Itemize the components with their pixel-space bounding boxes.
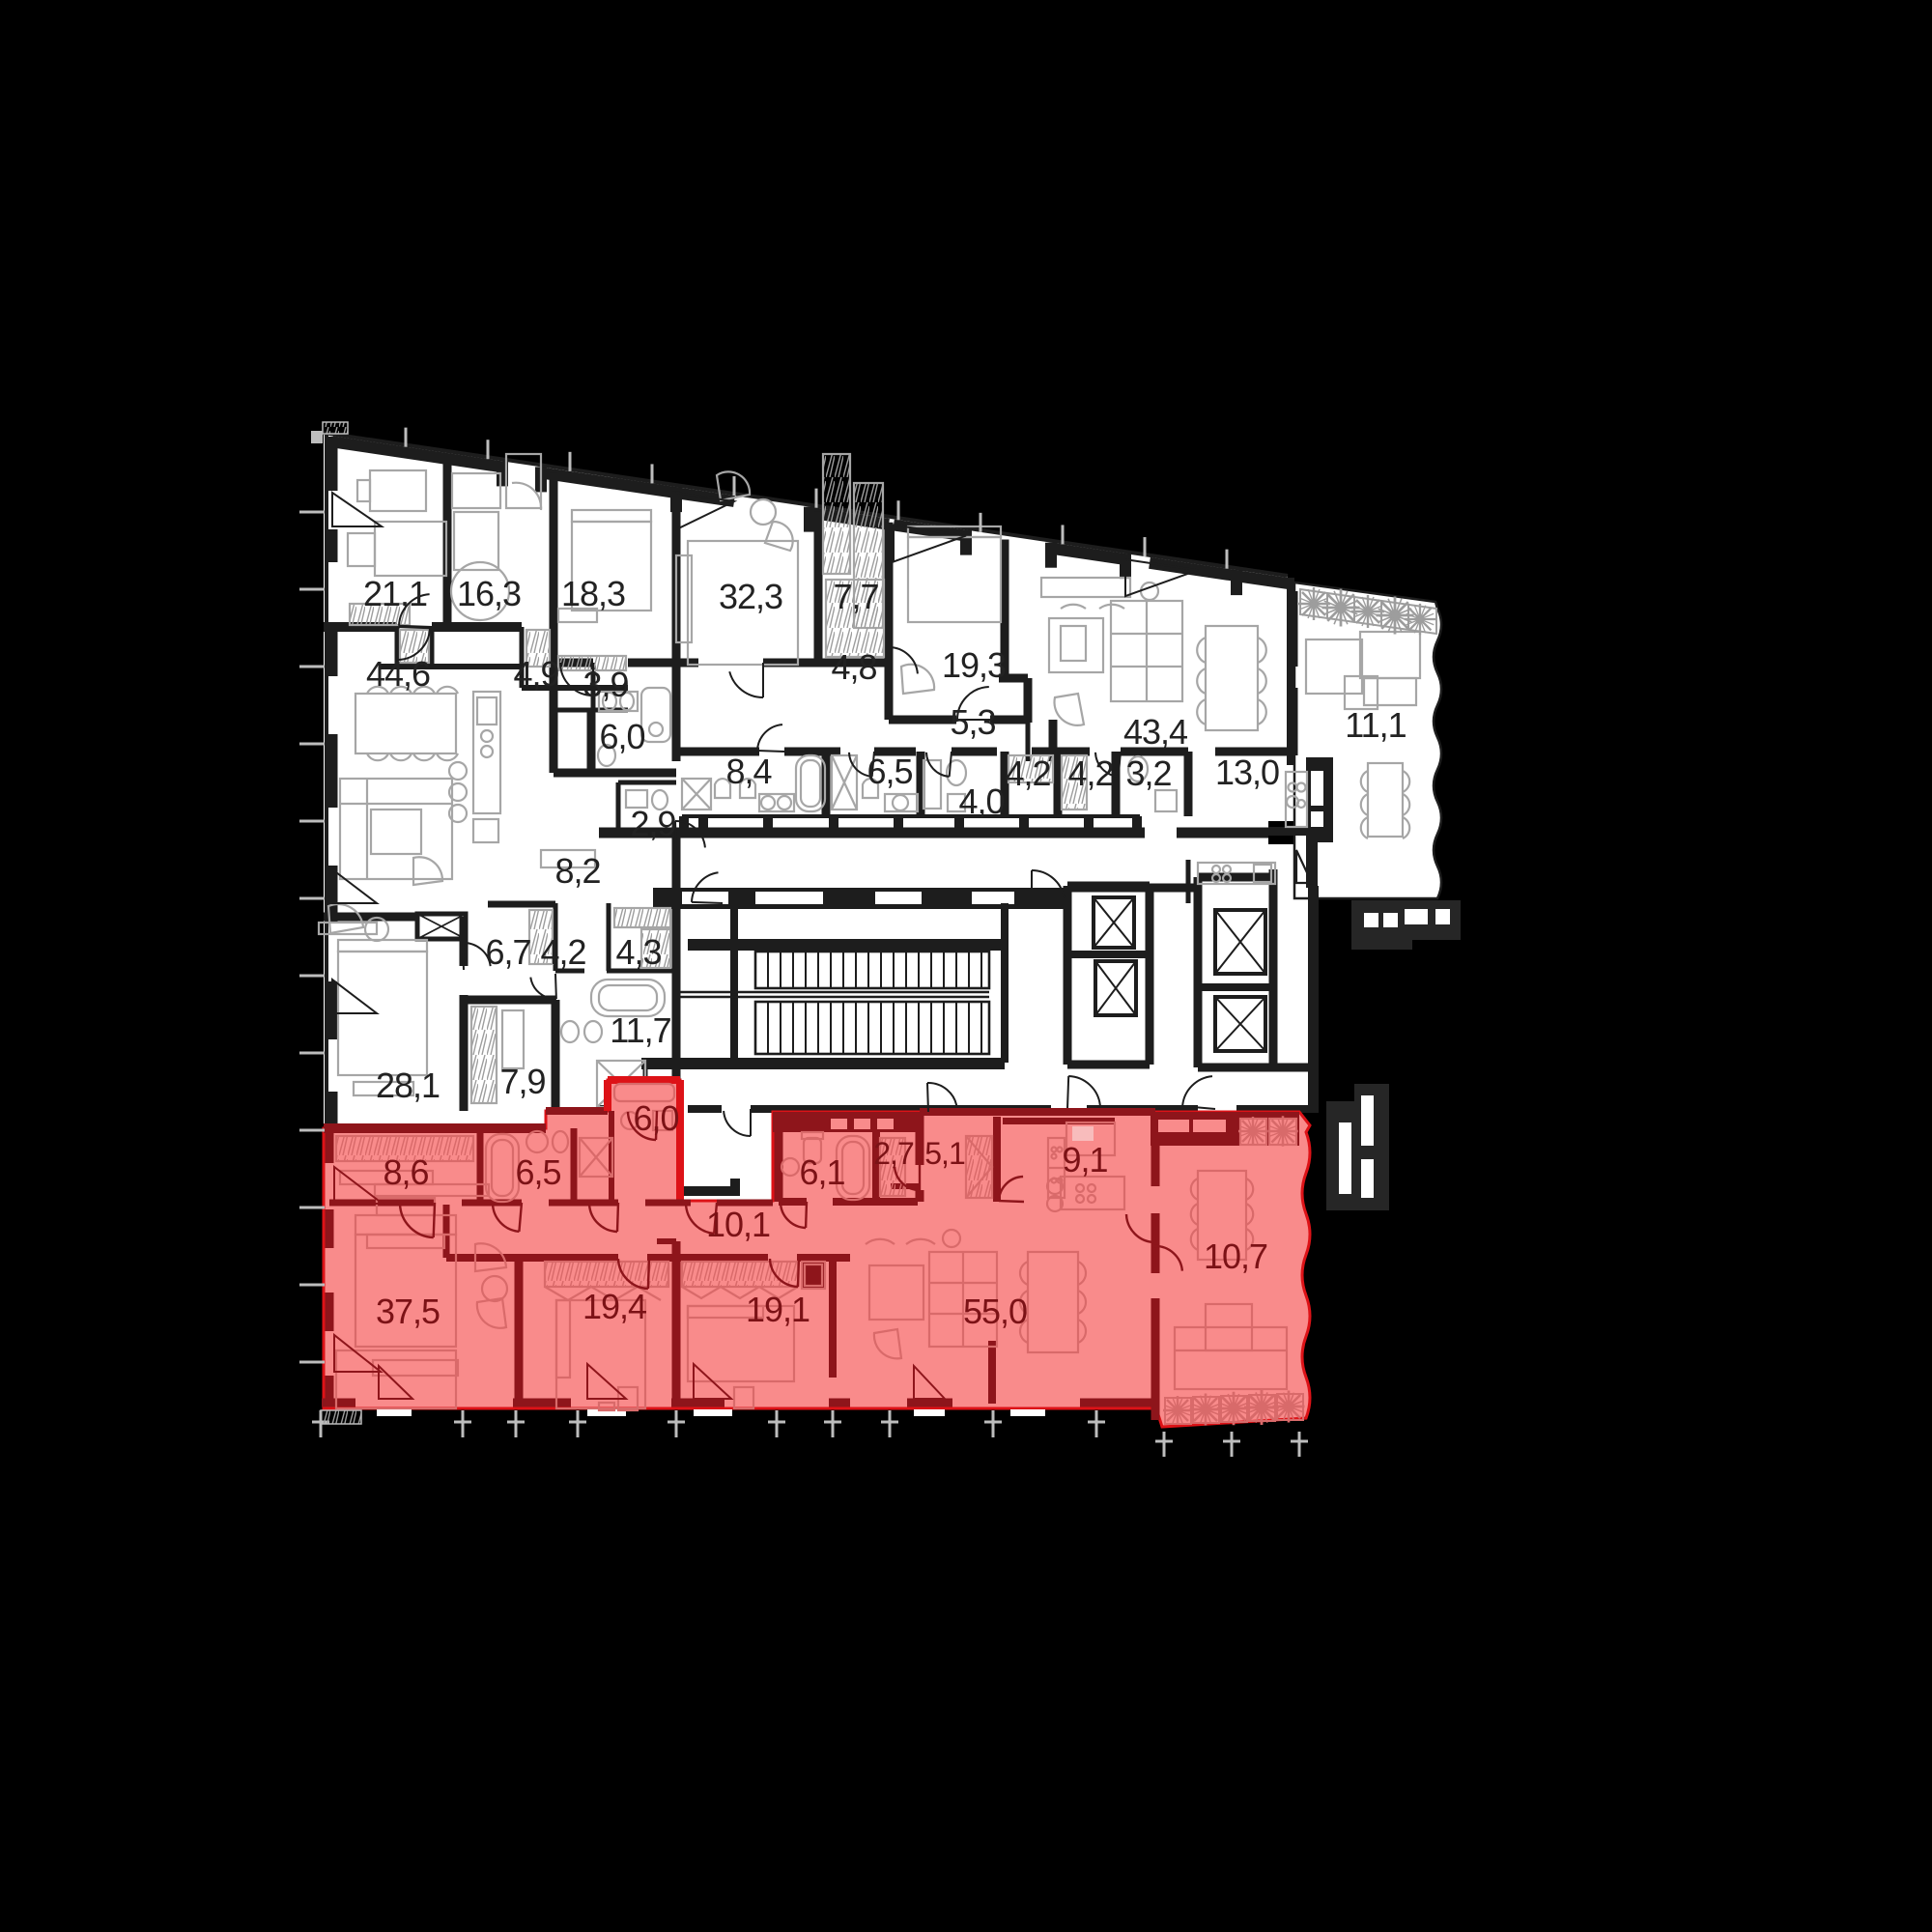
svg-text:11,7: 11,7: [610, 1010, 670, 1050]
svg-text:55,0: 55,0: [963, 1292, 1027, 1331]
svg-text:4,2: 4,2: [1005, 753, 1050, 793]
svg-text:19,4: 19,4: [582, 1287, 646, 1326]
svg-text:11,1: 11,1: [1345, 705, 1406, 745]
svg-text:8,4: 8,4: [725, 752, 771, 791]
svg-text:44,6: 44,6: [366, 654, 430, 694]
svg-text:18,3: 18,3: [561, 574, 625, 613]
svg-text:6,1: 6,1: [799, 1152, 844, 1192]
svg-text:8,6: 8,6: [383, 1152, 428, 1192]
svg-text:6,5: 6,5: [867, 752, 912, 791]
svg-text:2,9: 2,9: [630, 804, 675, 843]
svg-text:10,7: 10,7: [1204, 1236, 1267, 1276]
svg-text:13,0: 13,0: [1215, 753, 1279, 792]
svg-text:9,1: 9,1: [1062, 1140, 1107, 1179]
svg-text:4,2: 4,2: [1067, 753, 1113, 793]
svg-text:3,2: 3,2: [1125, 753, 1171, 793]
svg-text:6,5: 6,5: [515, 1152, 560, 1192]
svg-text:6,0: 6,0: [633, 1098, 678, 1138]
svg-text:6,7: 6,7: [485, 932, 530, 972]
svg-text:5,1: 5,1: [924, 1136, 965, 1171]
svg-text:3,9: 3,9: [582, 665, 628, 704]
svg-text:16,3: 16,3: [457, 574, 521, 613]
svg-text:43,4: 43,4: [1123, 712, 1187, 752]
svg-text:7,9: 7,9: [499, 1062, 545, 1101]
svg-text:8,2: 8,2: [554, 851, 600, 891]
svg-text:28,1: 28,1: [376, 1065, 440, 1105]
svg-text:21,1: 21,1: [363, 574, 427, 613]
svg-text:2,7: 2,7: [873, 1136, 914, 1171]
svg-text:4,9: 4,9: [513, 654, 558, 694]
svg-text:4,2: 4,2: [540, 932, 585, 972]
svg-text:4,8: 4,8: [831, 647, 876, 687]
svg-text:4,3: 4,3: [615, 932, 661, 972]
svg-text:19,1: 19,1: [746, 1290, 810, 1329]
svg-text:19,3: 19,3: [942, 645, 1006, 685]
svg-text:10,1: 10,1: [706, 1205, 770, 1244]
svg-text:4,0: 4,0: [958, 781, 1004, 821]
svg-text:37,5: 37,5: [376, 1292, 440, 1331]
svg-text:6,0: 6,0: [599, 717, 644, 756]
svg-text:32,3: 32,3: [719, 577, 782, 616]
svg-text:7,7: 7,7: [833, 577, 878, 616]
svg-text:5,3: 5,3: [950, 702, 995, 742]
